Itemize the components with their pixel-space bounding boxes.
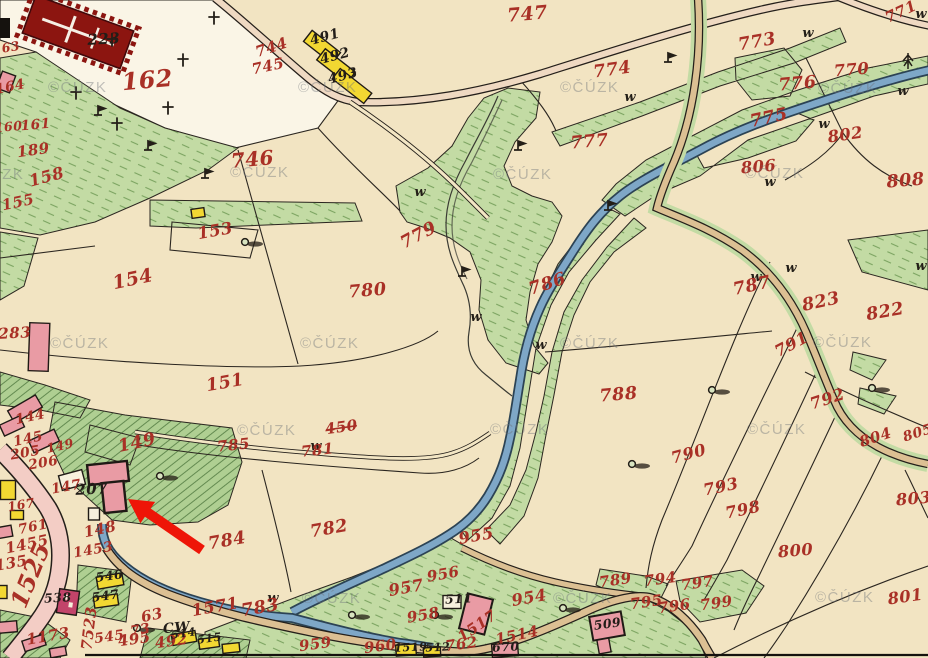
meadow-w-symbol: w [535,338,547,353]
svg-text:1519: 1519 [394,639,428,655]
svg-text:781: 781 [300,439,335,460]
parcel-label: 512 [425,639,451,654]
watermark: ©ČÚZK [48,79,107,96]
meadow-w-symbol: w [624,90,636,105]
meadow-w-symbol: w [470,310,482,325]
watermark: ©ČÚZK [815,589,874,606]
svg-text:800: 800 [776,539,814,561]
svg-text:223: 223 [86,29,121,49]
svg-text:788: 788 [599,383,639,406]
meadow-w-symbol: w [414,185,426,200]
watermark: ©ČÚZK [818,80,877,97]
cadastral-map-image[interactable]: wwwwwwwwwwwwww 1622237467447454914924937… [0,0,928,658]
parcel-label: 670 [492,638,520,654]
parcel-label: 1519 [394,639,428,655]
watermark: ©ČÚZK [230,164,289,181]
watermark: ©ČÚZK [560,335,619,352]
svg-text:162: 162 [121,64,174,96]
parcel-label: 538 [44,589,72,605]
svg-text:670: 670 [492,638,520,654]
svg-text:747: 747 [506,1,548,26]
meadow-w-symbol: w [915,259,927,274]
svg-text:770: 770 [833,58,870,80]
svg-text:803: 803 [894,488,928,510]
watermark: ©ČÚZK [298,79,357,96]
parcel-label: 777 [570,130,610,153]
map-viewport[interactable]: wwwwwwwwwwwwww 1622237467447454914924937… [0,0,928,658]
parcel-label: 511 [445,590,473,606]
parcel-label: 776 [778,72,818,95]
parcel-label: 223 [86,29,121,49]
watermark: ©ČÚZK [302,590,361,607]
parcel-label: 770 [833,58,870,80]
parcel-label: 803 [894,488,928,510]
meadow-w-symbol: w [802,26,814,41]
parcel-label: 781 [300,439,335,460]
parcel-label: 808 [885,169,926,192]
parcel-label: 207 [74,479,109,499]
parcel-label: 283 [0,323,32,343]
svg-text:161: 161 [20,116,51,135]
meadow-w-symbol: w [785,261,797,276]
watermark: ©ČÚZK [493,166,552,183]
frame-mark [0,18,10,38]
svg-text:780: 780 [348,279,388,302]
parcel-label: 161 [20,116,51,135]
watermark: ©ČÚZK [560,79,619,96]
svg-text:808: 808 [885,169,926,192]
svg-text:207: 207 [74,479,109,499]
watermark: ©ČÚZK [813,334,872,351]
svg-text:776: 776 [778,72,818,95]
watermark: ©ČÚZK [747,421,806,438]
watermark: ©ČÚZK [300,335,359,352]
svg-text:538: 538 [44,589,72,605]
svg-text:512: 512 [425,639,451,654]
svg-text:511: 511 [445,590,473,606]
meadow-w-symbol: w [897,84,909,99]
watermark: ©ČÚZK [0,166,24,183]
parcel-label: 788 [599,383,639,406]
svg-text:283: 283 [0,323,32,343]
watermark: ©ČÚZK [553,590,612,607]
watermark: ©ČÚZK [50,335,109,352]
watermark: ©ČÚZK [490,421,549,438]
parcel-label: 800 [776,539,814,561]
svg-text:777: 777 [570,130,610,153]
parcel-label: 747 [506,1,548,26]
parcel-label: 162 [121,64,174,96]
watermark: ©ČÚZK [237,422,296,439]
parcel-label: 780 [348,279,388,302]
watermark: ©ČÚZK [745,165,804,182]
